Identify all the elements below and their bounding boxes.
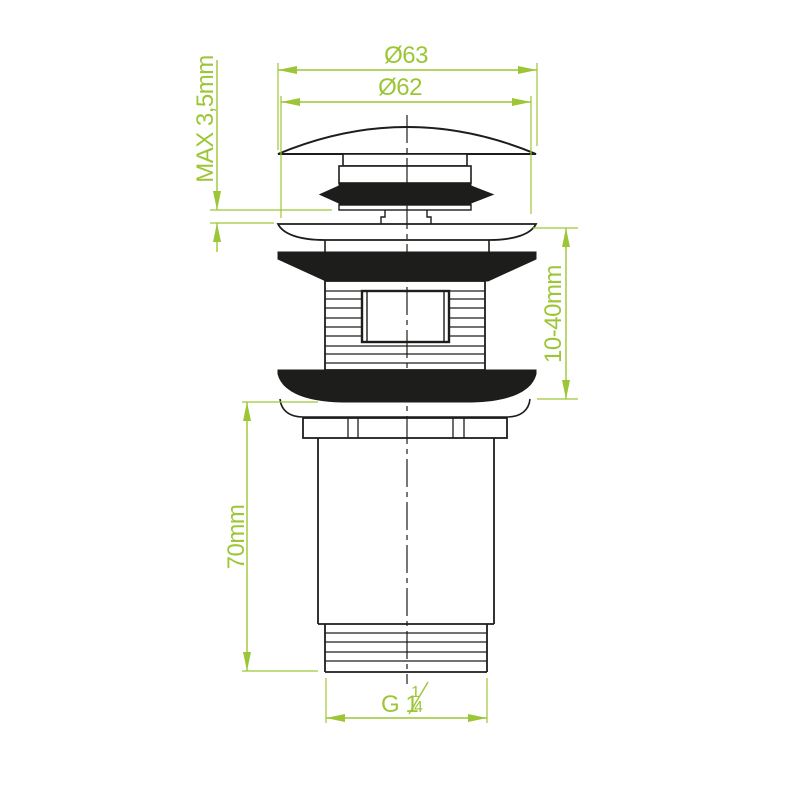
arrowhead-right-icon <box>468 714 487 722</box>
body-length-label: 70mm <box>223 505 250 570</box>
arrowhead-left-icon <box>281 98 300 106</box>
stem-steps <box>381 210 431 224</box>
arrowhead-right-icon <box>518 66 537 74</box>
dimension-clamping-range: 10-40mm <box>533 228 578 399</box>
thread-size-denominator: 4 <box>414 699 423 716</box>
arrowhead-right-icon <box>512 98 531 106</box>
dimension-body-length: 70mm <box>223 402 318 671</box>
arrowhead-down-icon <box>213 191 221 210</box>
locking-window <box>362 291 449 342</box>
tail-thread-lines <box>325 633 487 661</box>
arrowhead-left-icon <box>278 66 297 74</box>
seal-retainer <box>339 205 471 210</box>
cap-diameter-label: Ø63 <box>384 42 428 69</box>
arrowhead-up-icon <box>562 228 570 247</box>
arrowhead-down-icon <box>562 380 570 399</box>
cylinder-walls <box>318 438 494 624</box>
clamping-range-label: 10-40mm <box>540 265 567 363</box>
nut-outline <box>303 418 507 438</box>
plug-diameter-label: Ø62 <box>378 74 422 101</box>
dimension-thread-size: G 1 1 4 <box>326 678 487 723</box>
threaded-tail <box>325 624 487 672</box>
cylinder-body <box>318 438 494 624</box>
threaded-body <box>325 281 485 370</box>
technical-drawing-canvas: Ø63 Ø62 MAX 3,5mm 10-40mm 70mm <box>0 0 800 800</box>
popup-waste-drawing: Ø63 Ø62 MAX 3,5mm 10-40mm 70mm <box>0 0 800 800</box>
plug-collar <box>343 154 467 166</box>
max-gap-label: MAX 3,5mm <box>192 55 219 183</box>
plug-body <box>339 166 471 183</box>
arrowhead-down-icon <box>243 652 251 671</box>
arrowhead-left-icon <box>326 714 345 722</box>
arrowhead-up-icon <box>243 402 251 421</box>
locking-nut <box>303 418 507 438</box>
arrowhead-up-icon <box>213 223 221 242</box>
tail-outline <box>325 624 487 672</box>
